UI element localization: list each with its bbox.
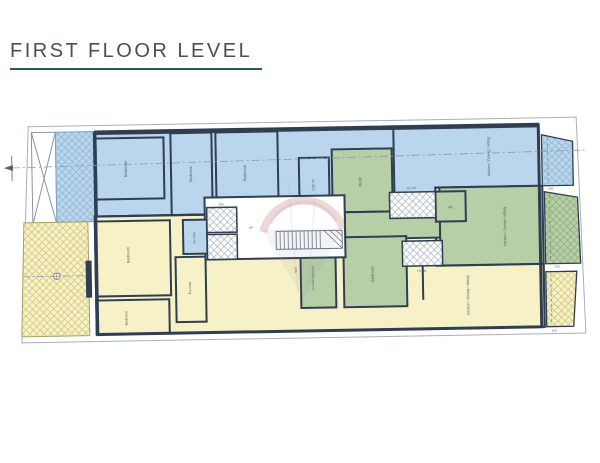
- label-bedroom-blue-1: Bedroom: [123, 160, 128, 177]
- label-level-balcony-yellow: -100: [551, 329, 557, 333]
- label-level-balcony-green: -100: [554, 264, 560, 268]
- label-bath-rm: bath rm: [311, 179, 315, 191]
- label-study: study: [357, 177, 362, 187]
- label-hlw-top: H.L.W: [407, 186, 416, 190]
- label-bedroom-blue-3: Bedroom: [242, 164, 247, 181]
- label-bedroom-yellow-1: Bedroom: [125, 246, 130, 263]
- balcony-blue-hatched: [541, 134, 573, 186]
- label-kitchen-blue: kitchen / Dining / sitting: [486, 137, 491, 176]
- terrace-hatched: [20, 222, 90, 337]
- label-kitchen-green: kitchen / Dining / sitting: [503, 207, 508, 246]
- label-ensuite-blue: En-suite: [192, 232, 196, 244]
- label-wc: Wc: [448, 205, 453, 209]
- lift-shaft-lower: [207, 234, 237, 260]
- floor-plan: BedroomBedroomBedroombath rmkitchen / Di…: [0, 0, 600, 463]
- floor-plan-canvas: BedroomBedroomBedroombath rmkitchen / Di…: [0, 0, 600, 463]
- label-up: UP: [249, 226, 254, 230]
- terrace-wall-stub: [86, 261, 93, 298]
- lift-shaft-upper: [207, 207, 237, 233]
- label-level-hlw: -100: [417, 236, 423, 240]
- label-kitchen-yellow: kitchen / Dining / sitting: [466, 276, 471, 315]
- hlw-shaft-top: [389, 192, 435, 219]
- label-bedroom-blue-2: Bedroom: [188, 165, 193, 182]
- label-level-shaft: -150: [218, 202, 224, 206]
- label-level-balcony-blue: -100: [547, 187, 553, 191]
- page: FIRST FLOOR LEVEL: [0, 0, 600, 463]
- label-bedroom-yellow-2: Bedroom: [124, 311, 128, 326]
- label-bedroom-green: Bedroom: [370, 265, 375, 282]
- blue-kitchen-wall: [393, 129, 394, 192]
- room-green-bedroom: [343, 236, 407, 307]
- hlw-shaft-right: [402, 241, 442, 267]
- blue-court-hatched: [55, 132, 97, 223]
- label-hlw-right: H.L.W: [417, 269, 426, 273]
- label-ensuite-yellow: En-suite: [188, 281, 192, 294]
